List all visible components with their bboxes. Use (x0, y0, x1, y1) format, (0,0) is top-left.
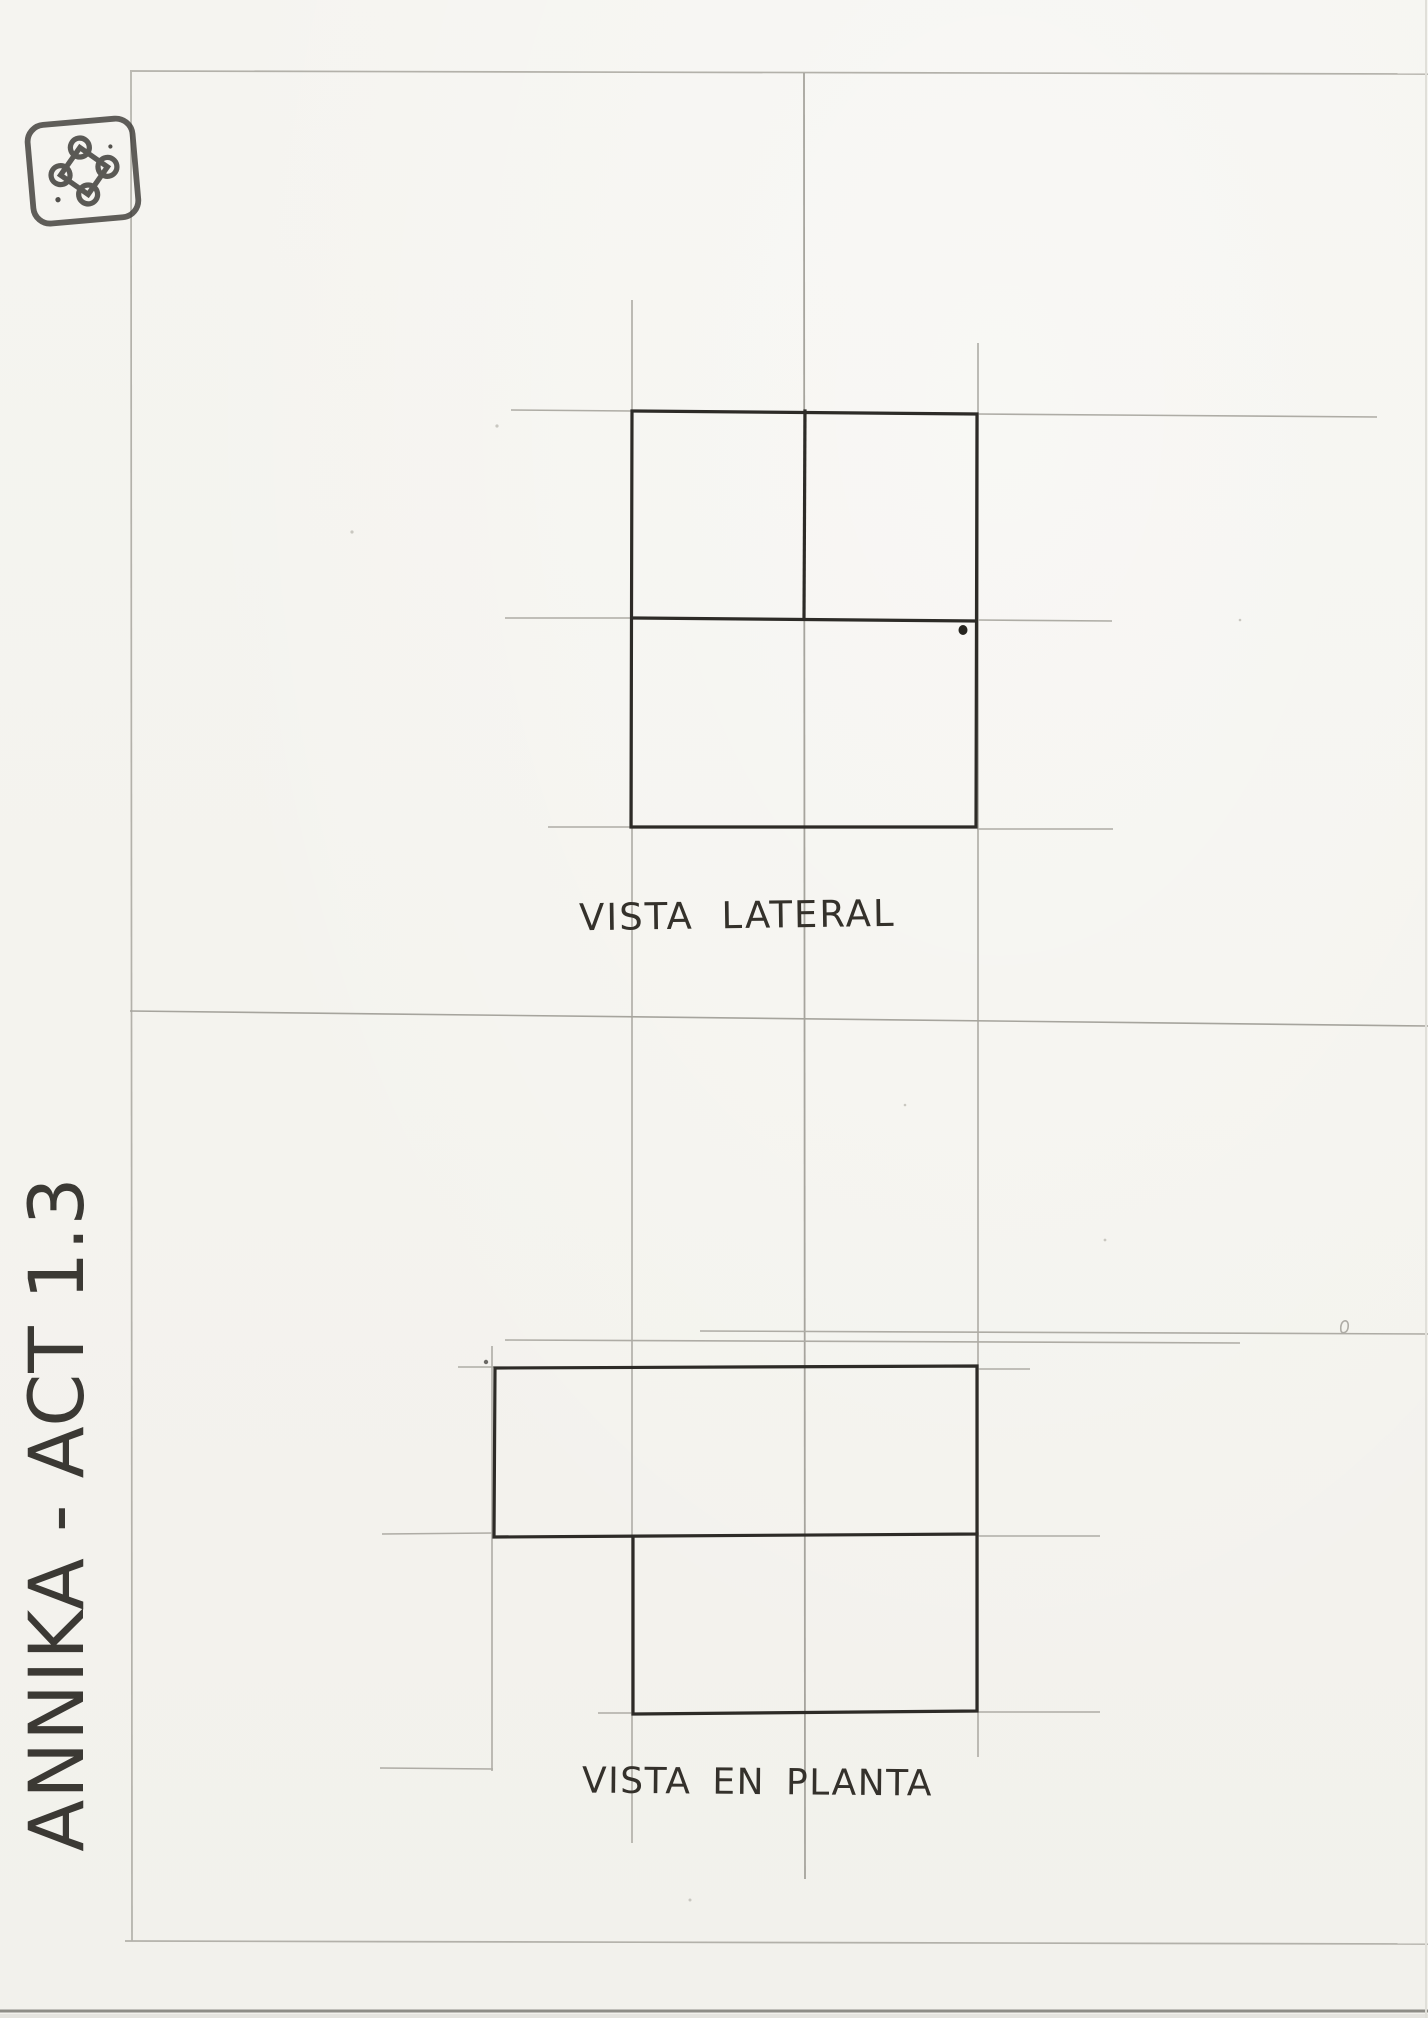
page-margin-lines (125, 71, 1428, 1944)
lateral-view-drawing (631, 411, 977, 827)
knot-stamp-icon (19, 107, 149, 235)
page-bottom-edge (0, 0, 1428, 2018)
lateral-view-divider-horizontal (632, 618, 976, 621)
ink-blot (959, 625, 968, 635)
stamp (19, 107, 149, 235)
caption-plan-view: VISTA EN PLANTA (582, 1763, 933, 1802)
plan-view-bottom-rect (633, 1534, 977, 1714)
lateral-view-outline (631, 411, 977, 827)
plan-view-drawing (494, 1366, 977, 1714)
signature-text: ANNIKA - ACT 1.3 (19, 1176, 95, 1852)
plan-view-top-rect (494, 1366, 977, 1537)
caption-lateral-view: VISTA LATERAL (579, 895, 896, 936)
drawing-sheet: VISTA LATERAL VISTA EN PLANTA ANNIKA - A… (0, 0, 1428, 2018)
construction-lines-layer (0, 0, 1428, 2018)
paper-specks (350, 424, 1241, 1901)
lateral-view-divider-vertical (804, 411, 805, 619)
projection-guide-lines (130, 73, 1428, 1879)
